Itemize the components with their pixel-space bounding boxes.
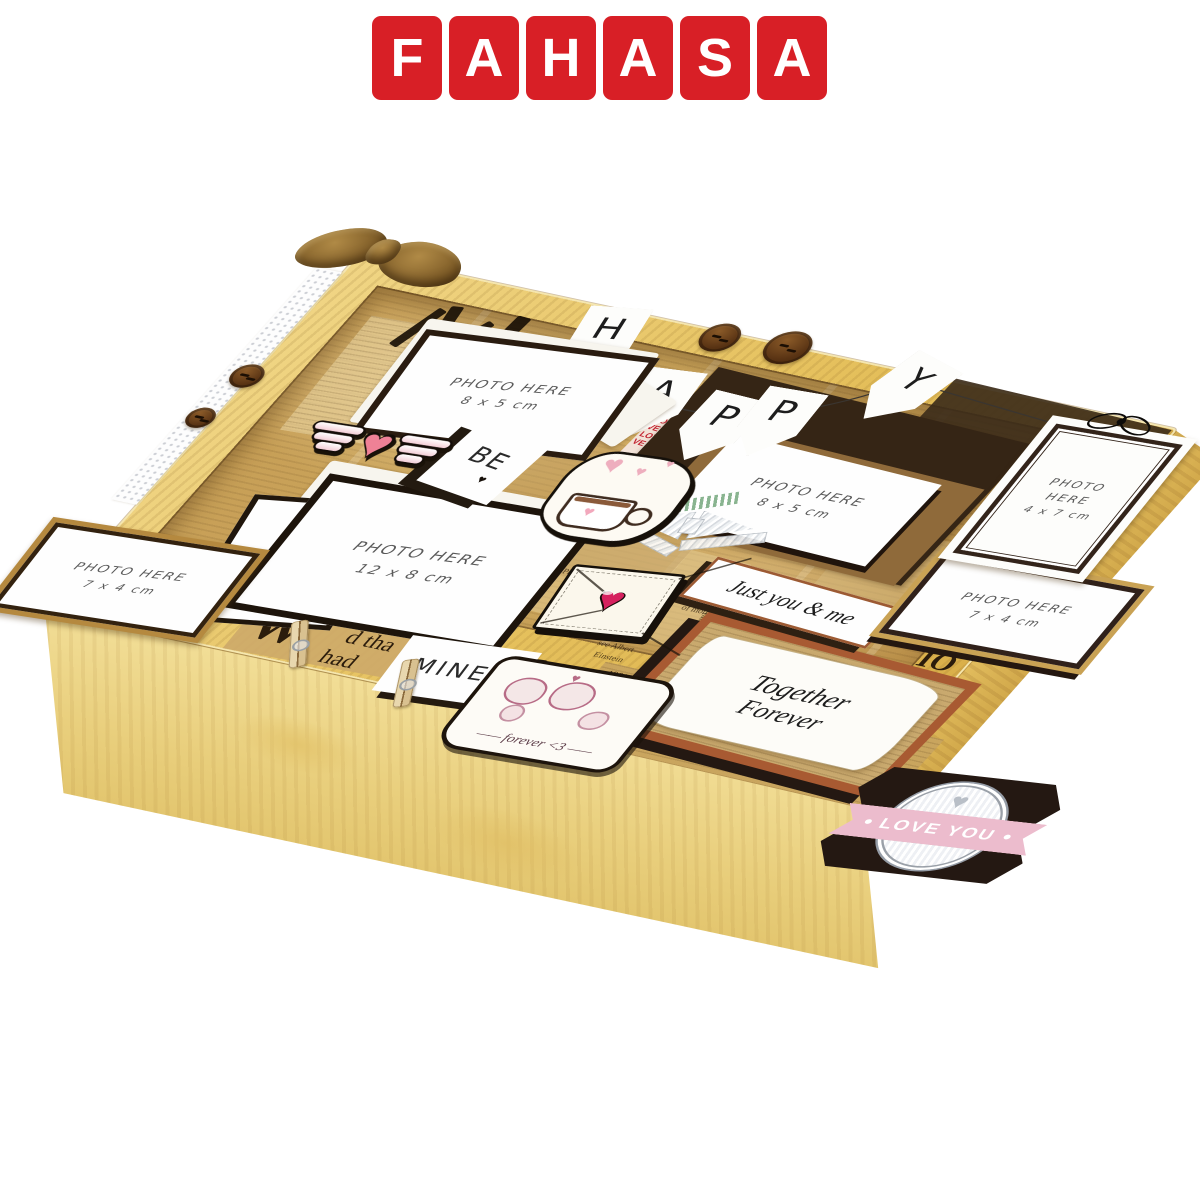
logo-letter-tile: F — [372, 16, 442, 100]
heart-icon: ♥ — [471, 472, 494, 487]
heart-steam-icon: ♥ — [597, 452, 629, 479]
heart-steam-icon: ♥ — [629, 464, 651, 481]
coffee — [573, 496, 632, 508]
logo-letter-tile: H — [526, 16, 596, 100]
love-you-text: LOVE YOU — [875, 815, 1001, 844]
flower-doodle — [573, 709, 614, 732]
logo-letter-tile: A — [603, 16, 673, 100]
logo-letter-tile: A — [757, 16, 827, 100]
bird-doodle — [496, 675, 555, 707]
clothespin — [288, 619, 308, 669]
be-text: BE — [460, 442, 517, 475]
gray-heart-icon: ♥ — [943, 789, 976, 815]
logo-letter-tile: A — [449, 16, 519, 100]
banner-dot — [1003, 834, 1013, 839]
logo-letter-tile: S — [680, 16, 750, 100]
heart-icon: ♥ — [577, 504, 599, 521]
bird-doodle — [541, 679, 603, 713]
product-photo: F A H A S A — [0, 0, 1200, 1200]
flower-doodle — [494, 703, 530, 723]
fahasa-logo: F A H A S A — [372, 16, 827, 100]
heart-steam-icon: ♥ — [662, 458, 679, 471]
banner-dot — [863, 819, 873, 824]
